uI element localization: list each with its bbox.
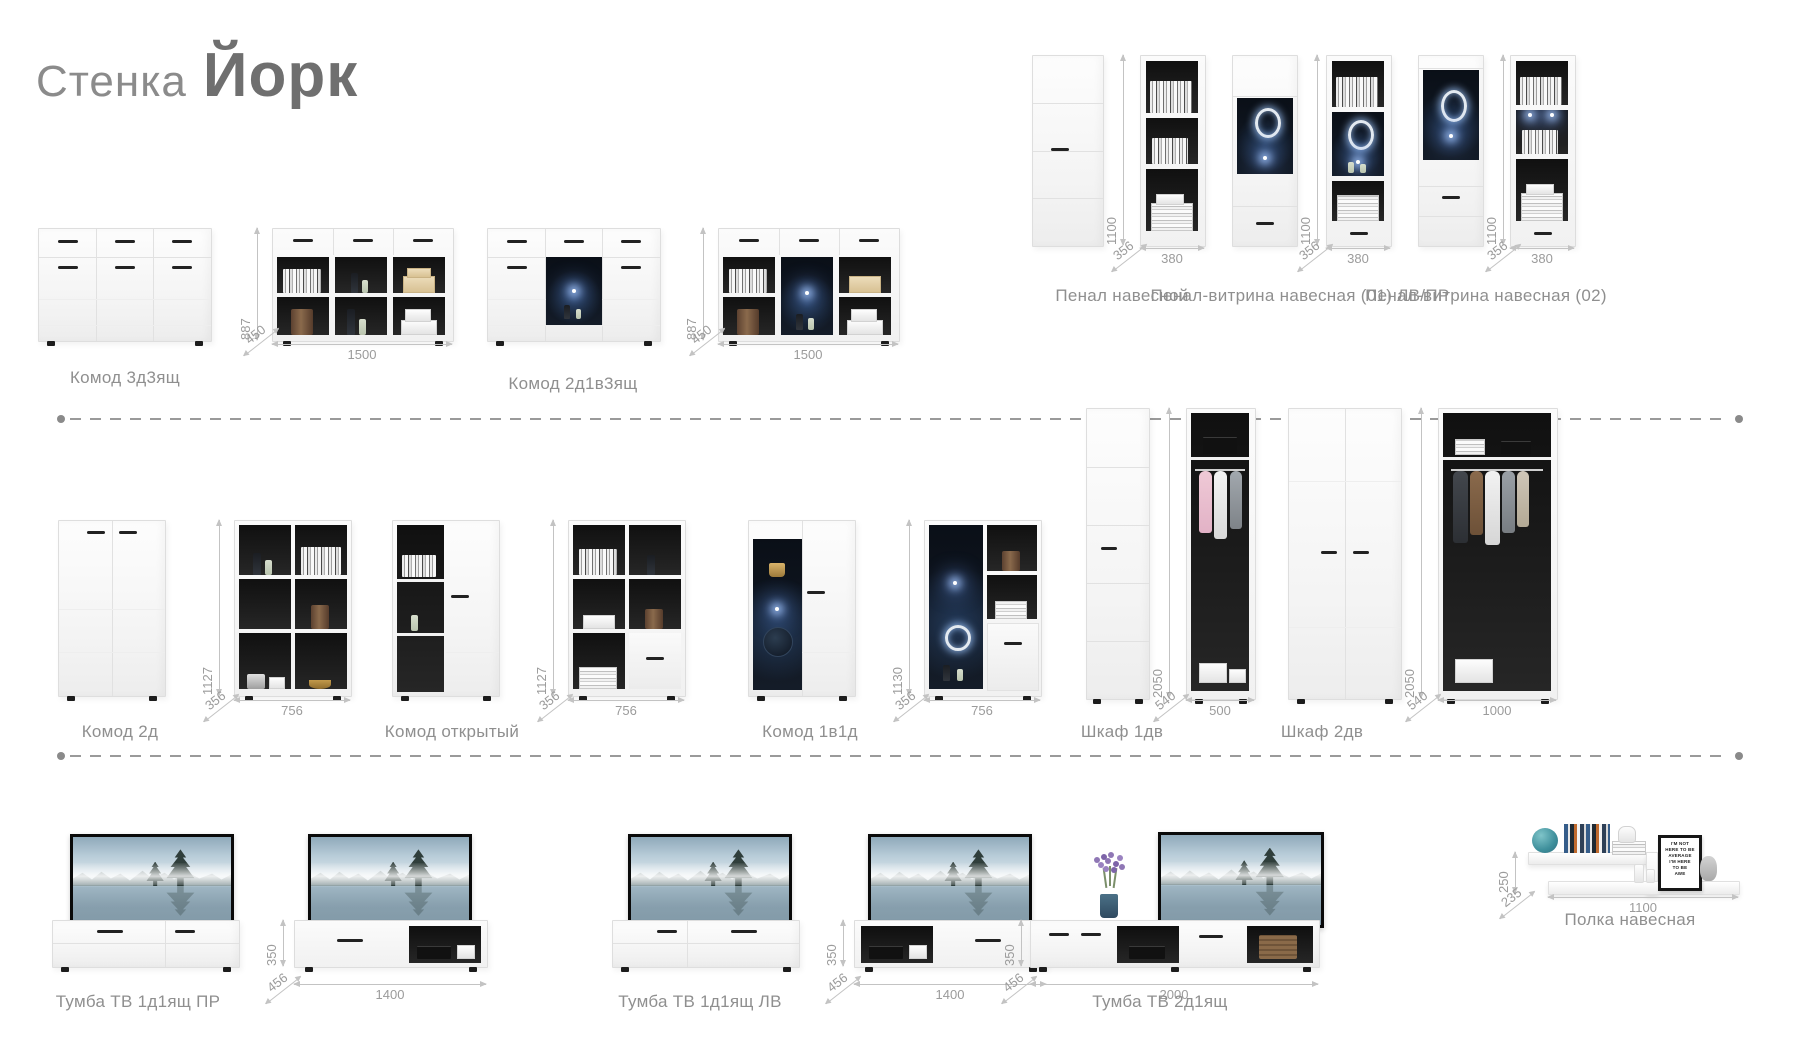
box — [269, 677, 285, 689]
books — [1152, 138, 1188, 164]
magazine-stack — [995, 601, 1027, 619]
glass-vitrine — [781, 257, 833, 335]
komod-otkrytyi-open-view — [568, 520, 686, 697]
komod-1v1d-open-view — [924, 520, 1042, 697]
komod-2d-open-view — [234, 520, 352, 697]
door-handle — [172, 266, 192, 269]
wooden-vase — [311, 605, 329, 629]
width-dim: 1500 — [272, 344, 452, 362]
tv-screen — [1158, 832, 1324, 928]
ring-light — [945, 625, 971, 651]
open-niche — [1247, 926, 1313, 963]
tumba-pr-open-view — [294, 920, 488, 968]
books — [729, 269, 767, 293]
media-receiver — [1129, 946, 1165, 959]
door-handle — [175, 930, 195, 933]
komod-3d3-open-view — [272, 228, 454, 342]
media-receiver — [417, 946, 451, 959]
tumba-2d1-view — [1030, 920, 1320, 968]
books — [1520, 77, 1562, 105]
bottle — [647, 555, 655, 575]
drawer-handle — [115, 240, 135, 243]
door-handle — [1049, 933, 1069, 936]
box — [847, 320, 883, 335]
drawer-front — [987, 623, 1039, 691]
shkaf-2dv-open-view — [1438, 408, 1558, 700]
door-handle — [1101, 547, 1117, 550]
bottle — [576, 309, 581, 319]
height-dim: 1130 — [890, 520, 914, 695]
tv-screen — [308, 834, 472, 928]
led-light — [1356, 160, 1360, 164]
width-dim: 1500 — [718, 344, 898, 362]
height-dim: 1127 — [534, 520, 558, 695]
width-dim: 756 — [234, 700, 350, 718]
foot — [644, 341, 652, 346]
product-label: Комод 3д3ящ — [70, 368, 180, 388]
books — [1336, 77, 1378, 107]
height-dim: 1100 — [1298, 55, 1322, 245]
gray-vase — [1700, 856, 1717, 881]
open-niche — [1117, 926, 1179, 963]
hanging-clothes — [1517, 471, 1529, 527]
led-light — [1263, 156, 1267, 160]
box — [1199, 663, 1227, 683]
bottle — [347, 309, 355, 335]
books — [579, 549, 617, 575]
white-vase — [1618, 826, 1636, 843]
height-dim: 1100 — [1104, 55, 1128, 245]
wooden-vase — [645, 609, 663, 629]
komod-otkrytyi-closed-view — [392, 520, 500, 697]
drawer-handle — [293, 239, 313, 242]
glass-vitrine — [546, 257, 602, 325]
wooden-vase — [737, 309, 759, 335]
bottle — [564, 305, 570, 319]
foot — [496, 341, 504, 346]
tumba-pr-closed-view — [52, 920, 240, 968]
drawer-handle — [621, 240, 641, 243]
wooden-vase — [1002, 551, 1020, 571]
box — [403, 276, 435, 293]
glass-vitrine — [1237, 98, 1293, 174]
box — [407, 268, 431, 278]
books — [402, 555, 436, 577]
door-handle — [657, 930, 677, 933]
drawer-handle — [1350, 232, 1368, 235]
door-handle — [1321, 551, 1337, 554]
bottle — [808, 318, 814, 330]
glass-vitrine — [1423, 70, 1479, 160]
led-light — [1449, 134, 1453, 138]
bottle — [796, 314, 803, 330]
door-handle — [1353, 551, 1369, 554]
drawer-handle — [413, 239, 433, 242]
door-handle — [87, 531, 105, 534]
product-label: Тумба ТВ 2д1ящ — [1092, 992, 1227, 1012]
drawer-handle — [58, 240, 78, 243]
hanging-clothes — [1199, 471, 1212, 533]
page-title: Стенка Йорк — [36, 40, 358, 111]
door-handle — [115, 266, 135, 269]
drawer-handle — [337, 939, 363, 942]
height-dim: 1127 — [200, 520, 224, 695]
box — [1229, 669, 1246, 683]
bottle — [411, 615, 418, 631]
tv-screen — [868, 834, 1032, 928]
height-dim: 350 — [1004, 920, 1026, 966]
dark-bowl — [763, 627, 793, 657]
wooden-vase — [291, 309, 313, 335]
magazine-stack — [1337, 195, 1379, 221]
door-handle — [1051, 148, 1069, 151]
led-light — [1528, 113, 1532, 117]
glass-vitrine — [753, 539, 802, 690]
hanging-clothes — [1502, 471, 1515, 533]
media-receiver — [869, 946, 903, 959]
open-niche — [409, 926, 481, 963]
height-dim: 1100 — [1484, 55, 1508, 245]
open-niche — [861, 926, 933, 963]
width-dim: 380 — [1510, 248, 1574, 266]
books — [1522, 130, 1558, 154]
teal-vase — [1532, 828, 1558, 853]
bottle — [253, 553, 261, 575]
komod-1v1d-closed-view — [748, 520, 856, 697]
width-dim: 500 — [1186, 700, 1254, 718]
komod-2d-closed-view — [58, 520, 166, 697]
product-label: Пенал-витрина навесная (02) — [1365, 286, 1607, 306]
magazine-stack — [1151, 203, 1193, 231]
door-handle — [807, 591, 825, 594]
foot — [61, 967, 69, 972]
door-handle — [119, 531, 137, 534]
komod-3d3-closed-view — [38, 228, 212, 342]
framed-poster: I'M NOTHERE TO BE AVERAGEI'M HERE TO BEA… — [1658, 835, 1702, 891]
product-label: Шкаф 2дв — [1281, 722, 1363, 742]
led-light — [1550, 113, 1554, 117]
product-label: Комод 2д — [82, 722, 159, 742]
box — [1156, 194, 1184, 205]
storage-box — [1501, 441, 1531, 454]
foot — [1135, 699, 1143, 704]
box — [849, 276, 881, 293]
width-dim: 1000 — [1438, 700, 1556, 718]
product-label: Тумба ТВ 1д1ящ ПР — [56, 992, 221, 1012]
drawer-handle — [353, 239, 373, 242]
foot — [47, 341, 55, 346]
penal-closed-view — [1032, 55, 1104, 247]
catalog-page: Стенка Йорк 887 — [0, 0, 1800, 1042]
penal-open-view — [1140, 55, 1206, 247]
foot — [67, 696, 75, 701]
drawer-handle — [799, 239, 819, 242]
foot — [195, 341, 203, 346]
wicker-basket — [1259, 935, 1297, 959]
drawer-handle — [1256, 222, 1274, 225]
drawer-handle — [1534, 232, 1552, 235]
golden-cup — [769, 563, 785, 577]
clothes-rod — [1451, 469, 1543, 471]
tumba-lv-closed-view — [612, 920, 800, 968]
shkaf-1dv-open-view — [1186, 408, 1256, 700]
box — [457, 945, 475, 959]
foot — [483, 696, 491, 701]
shkaf-1dv-closed-view — [1086, 408, 1150, 700]
storage-stack — [1455, 439, 1485, 455]
foot — [757, 696, 765, 701]
page-title-bold: Йорк — [203, 40, 358, 111]
height-dim: 350 — [826, 920, 848, 966]
page-title-light: Стенка — [36, 57, 187, 107]
product-label: Комод открытый — [385, 722, 519, 742]
books — [1150, 81, 1192, 113]
foot — [621, 967, 629, 972]
foot — [1385, 699, 1393, 704]
drawer-handle — [646, 657, 664, 660]
penal-vitrina-02-closed-view — [1418, 55, 1484, 247]
box — [401, 320, 437, 335]
drawer-handle — [507, 240, 527, 243]
door-handle — [507, 266, 527, 269]
candle — [1646, 869, 1655, 883]
magazine-stack — [579, 667, 617, 689]
product-label: Шкаф 1дв — [1081, 722, 1163, 742]
width-dim: 380 — [1140, 248, 1204, 266]
candle — [1634, 864, 1644, 883]
ring-light — [1255, 108, 1281, 138]
magazine-stack — [1521, 193, 1563, 221]
door-handle — [58, 266, 78, 269]
led-light — [953, 581, 957, 585]
led-light — [572, 289, 576, 293]
box — [405, 309, 431, 322]
drawer-handle — [97, 930, 123, 933]
hanging-clothes — [1485, 471, 1500, 545]
lavender-flowers — [1105, 858, 1111, 864]
penal-vitrina-01-closed-view — [1232, 55, 1298, 247]
book-row — [1564, 824, 1610, 853]
bottle — [1360, 164, 1366, 173]
width-dim: 1400 — [294, 984, 486, 1002]
drawer-handle — [731, 930, 757, 933]
height-dim: 350 — [266, 920, 288, 966]
metal-pot — [247, 674, 265, 689]
height-dim: 2050 — [1402, 408, 1426, 698]
bottle — [943, 665, 950, 681]
penal-vitrina-01-open-view — [1326, 55, 1392, 247]
foot — [1171, 967, 1179, 972]
led-light — [805, 291, 809, 295]
drawer-handle — [975, 939, 1001, 942]
penal-vitrina-02-open-view — [1510, 55, 1576, 247]
bottle — [362, 280, 368, 293]
lavender-vase — [1092, 850, 1126, 920]
foot — [469, 967, 477, 972]
hanging-clothes — [1214, 471, 1227, 539]
door-handle — [451, 595, 469, 598]
wall-shelf-lower-board — [1548, 881, 1740, 895]
drawer-handle — [172, 240, 192, 243]
box — [1526, 184, 1554, 195]
drawer-handle — [739, 239, 759, 242]
book-stack — [1612, 841, 1646, 855]
foot — [1093, 699, 1101, 704]
tv-screen — [70, 834, 234, 928]
box — [1455, 659, 1493, 683]
door-handle — [1442, 196, 1460, 199]
door-handle — [621, 266, 641, 269]
komod-2d1v3-open-view — [718, 228, 900, 342]
hanging-clothes — [1453, 471, 1468, 543]
foot — [865, 967, 873, 972]
ring-light — [1348, 120, 1374, 150]
box — [851, 309, 877, 322]
bottle — [359, 319, 366, 335]
glass-vitrine — [929, 525, 983, 689]
section-separator — [70, 755, 1730, 757]
glass-vitrine — [1332, 112, 1384, 176]
komod-2d1v3-closed-view — [487, 228, 661, 342]
hanging-clothes — [1230, 471, 1242, 529]
width-dim: 756 — [568, 700, 684, 718]
ring-light — [1441, 90, 1467, 122]
width-dim: 756 — [924, 700, 1040, 718]
led-light — [775, 607, 779, 611]
bottle — [265, 560, 272, 575]
drawer-handle — [564, 240, 584, 243]
foot — [149, 696, 157, 701]
tv-screen — [628, 834, 792, 928]
foot — [223, 967, 231, 972]
books — [283, 269, 321, 293]
bottle — [957, 669, 963, 681]
product-label: Комод 1в1д — [762, 722, 858, 742]
drawer-handle — [859, 239, 879, 242]
storage-box — [1203, 437, 1237, 454]
foot — [305, 967, 313, 972]
shkaf-2dv-closed-view — [1288, 408, 1402, 700]
foot — [1297, 699, 1305, 704]
product-label: Комод 2д1в3ящ — [508, 374, 637, 394]
box — [909, 945, 927, 959]
books — [301, 547, 341, 575]
hanging-clothes — [1470, 471, 1483, 535]
box — [583, 615, 615, 629]
foot — [1303, 967, 1311, 972]
bottle — [1348, 162, 1354, 173]
golden-bowl — [309, 680, 331, 689]
height-dim: 2050 — [1150, 408, 1174, 698]
drawer-handle — [1004, 642, 1022, 645]
foot — [783, 967, 791, 972]
foot — [839, 696, 847, 701]
drawer-handle — [1199, 935, 1223, 938]
product-label: Тумба ТВ 1д1ящ ЛВ — [618, 992, 782, 1012]
bottle — [351, 273, 358, 293]
width-dim: 380 — [1326, 248, 1390, 266]
door-handle — [1081, 933, 1101, 936]
product-label: Полка навесная — [1564, 910, 1695, 930]
foot — [1039, 967, 1047, 972]
plant-pot — [1100, 894, 1118, 918]
foot — [401, 696, 409, 701]
